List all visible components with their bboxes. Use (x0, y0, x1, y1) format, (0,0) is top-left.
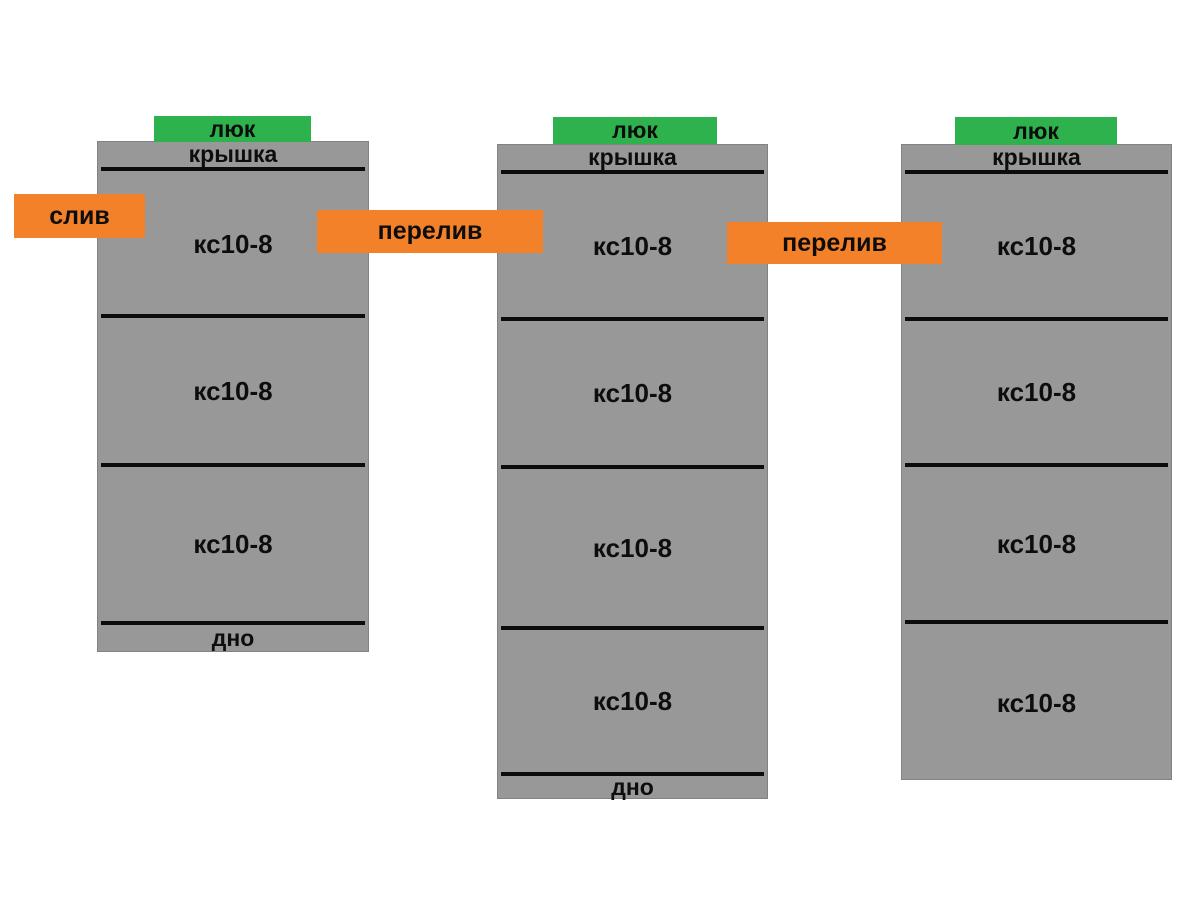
hatch-label: люк (612, 119, 658, 142)
ring-label: кс10-8 (593, 233, 672, 259)
ring-section: кс10-8 (902, 174, 1171, 317)
ring-label: кс10-8 (193, 378, 272, 404)
cover-label: крышка (498, 144, 767, 171)
ring-label: кс10-8 (593, 380, 672, 406)
drain-connector: слив (14, 194, 145, 238)
hatch-block-3: люк (955, 117, 1117, 145)
ring-divider-line (501, 317, 764, 321)
overflow-connector-1: перелив (317, 210, 543, 253)
ring-label: кс10-8 (997, 690, 1076, 716)
ring-divider-line (905, 317, 1168, 321)
bottom-divider-line (101, 621, 365, 625)
hatch-label: люк (210, 118, 256, 141)
cover-divider-line (905, 170, 1168, 174)
ring-section: кс10-8 (98, 467, 368, 621)
ring-divider-line (905, 463, 1168, 467)
cover-divider-line (501, 170, 764, 174)
ring-section: кс10-8 (498, 469, 767, 626)
ring-section: кс10-8 (902, 624, 1171, 781)
hatch-label: люк (1013, 120, 1059, 143)
ring-divider-line (101, 463, 365, 467)
ring-label: кс10-8 (193, 531, 272, 557)
septic-wells-diagram: люк крышка кс10-8 кс10-8 кс10-8 дно люк … (0, 0, 1200, 900)
overflow-label: перелив (378, 219, 483, 244)
ring-section: кс10-8 (902, 321, 1171, 463)
bottom-divider-line (501, 772, 764, 776)
ring-section: кс10-8 (98, 318, 368, 463)
bottom-label: дно (98, 625, 368, 652)
drain-label: слив (49, 204, 110, 229)
ring-divider-line (501, 626, 764, 630)
cover-label: крышка (902, 144, 1171, 171)
ring-label: кс10-8 (997, 531, 1076, 557)
hatch-block-1: люк (154, 116, 311, 142)
hatch-block-2: люк (553, 117, 717, 144)
ring-section: кс10-8 (498, 630, 767, 772)
overflow-label: перелив (782, 231, 887, 256)
ring-label: кс10-8 (193, 231, 272, 257)
ring-label: кс10-8 (997, 379, 1076, 405)
ring-label: кс10-8 (593, 688, 672, 714)
ring-section: кс10-8 (902, 467, 1171, 620)
ring-label: кс10-8 (997, 233, 1076, 259)
ring-divider-line (905, 620, 1168, 624)
cover-divider-line (101, 167, 365, 171)
ring-section: кс10-8 (498, 321, 767, 465)
ring-divider-line (101, 314, 365, 318)
ring-divider-line (501, 465, 764, 469)
bottom-label: дно (498, 775, 767, 799)
ring-label: кс10-8 (593, 535, 672, 561)
cover-label: крышка (98, 141, 368, 168)
overflow-connector-2: перелив (727, 222, 942, 264)
